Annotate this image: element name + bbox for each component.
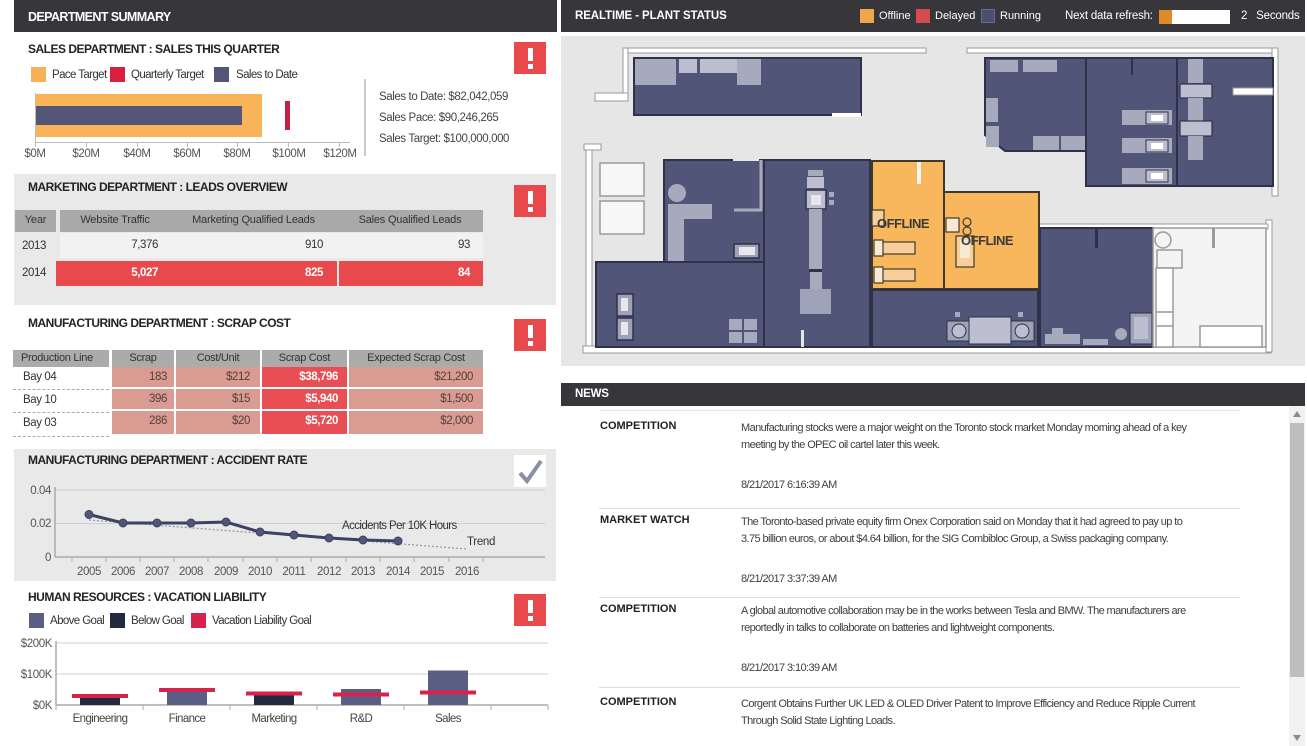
svg-text:$0K: $0K xyxy=(33,700,53,712)
svg-text:Finance: Finance xyxy=(169,713,206,725)
svg-text:0.04: 0.04 xyxy=(30,485,52,497)
svg-text:2009: 2009 xyxy=(214,566,238,578)
svg-text:Sales: Sales xyxy=(435,713,462,725)
svg-text:2008: 2008 xyxy=(179,566,203,578)
svg-text:0.02: 0.02 xyxy=(30,518,51,530)
svg-text:2007: 2007 xyxy=(145,566,169,578)
svg-text:R&D: R&D xyxy=(350,713,373,725)
svg-text:0: 0 xyxy=(45,552,51,564)
svg-text:2012: 2012 xyxy=(317,566,341,578)
svg-text:2010: 2010 xyxy=(248,566,272,578)
svg-text:OFFLINE: OFFLINE xyxy=(877,216,930,231)
svg-text:OFFLINE: OFFLINE xyxy=(961,233,1014,248)
svg-text:2006: 2006 xyxy=(111,566,135,578)
svg-text:2014: 2014 xyxy=(386,566,411,578)
svg-text:2011: 2011 xyxy=(282,566,305,578)
svg-text:Trend: Trend xyxy=(467,536,495,548)
svg-text:Marketing: Marketing xyxy=(251,713,296,725)
svg-text:2005: 2005 xyxy=(77,566,101,578)
svg-text:2013: 2013 xyxy=(351,566,375,578)
svg-text:Accidents Per 10K Hours: Accidents Per 10K Hours xyxy=(342,520,458,532)
svg-text:Engineering: Engineering xyxy=(73,713,128,725)
svg-text:$100K: $100K xyxy=(21,669,53,681)
svg-text:2015: 2015 xyxy=(420,566,444,578)
svg-text:$200K: $200K xyxy=(21,638,53,650)
svg-text:2016: 2016 xyxy=(455,566,479,578)
